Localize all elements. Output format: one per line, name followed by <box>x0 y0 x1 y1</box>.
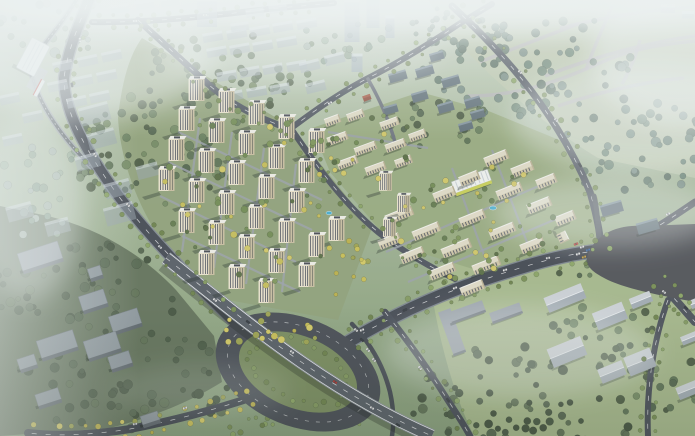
render-canvas <box>0 0 695 436</box>
aerial-masterplan-render <box>0 0 695 436</box>
bottom-vignette <box>0 0 695 436</box>
atmosphere-layer <box>0 0 695 436</box>
